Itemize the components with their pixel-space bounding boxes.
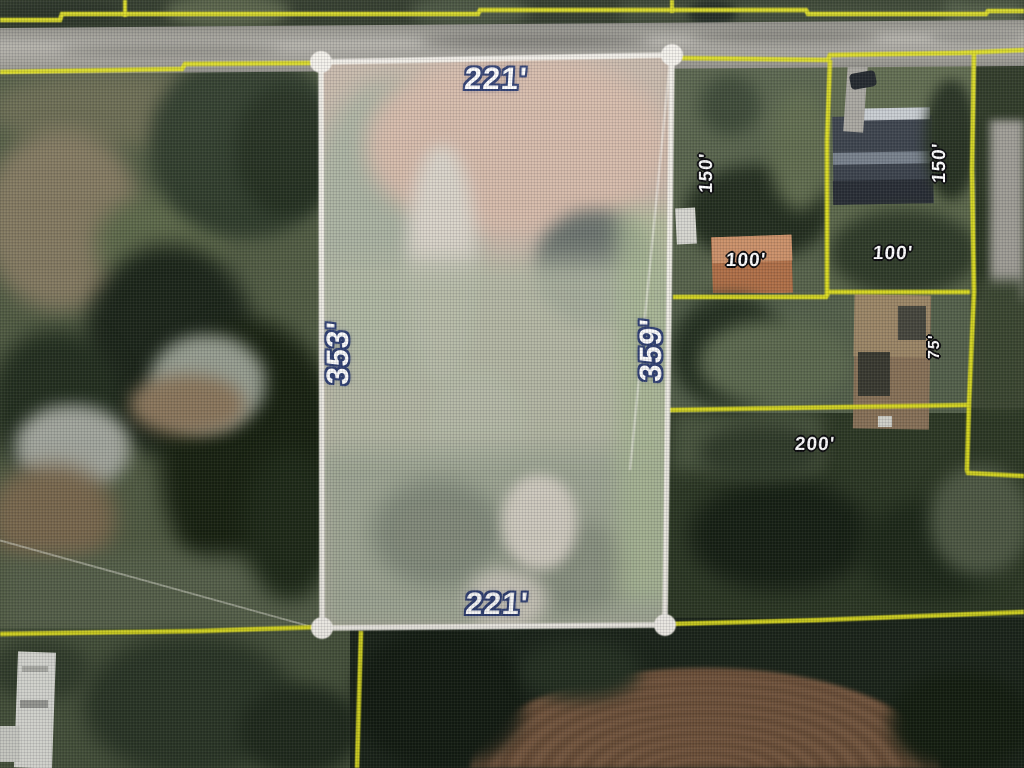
lot1-frontage-dimension: 100' bbox=[725, 250, 767, 272]
main-parcel-top-dimension: 221' bbox=[463, 61, 529, 97]
corner-marker-se bbox=[654, 614, 676, 636]
main-parcel-left-dimension: 353' bbox=[320, 320, 356, 386]
main-parcel-outline bbox=[321, 55, 672, 628]
lot1-lot2-south-line bbox=[673, 292, 970, 297]
southwest-boundary-line bbox=[0, 627, 322, 634]
survey-measure-line bbox=[630, 60, 670, 470]
lot2-frontage-dimension: 100' bbox=[872, 243, 914, 265]
corner-marker-nw bbox=[310, 51, 332, 73]
lot3-depth-dimension: 75' bbox=[926, 334, 944, 360]
boundary-lines-overlay bbox=[0, 0, 1024, 768]
south-divider-line bbox=[357, 631, 361, 768]
east-boundary-line bbox=[967, 52, 1024, 476]
main-parcel-right-dimension: 359' bbox=[633, 317, 669, 383]
road-north-boundary-line bbox=[0, 10, 1024, 20]
lot2-depth-dimension: 150' bbox=[929, 142, 951, 184]
lot3-south-line bbox=[670, 405, 968, 410]
west-approach-line bbox=[0, 63, 318, 72]
lot3-width-dimension: 200' bbox=[794, 434, 836, 456]
corner-marker-ne bbox=[661, 44, 683, 66]
aerial-parcel-map: 221' 353' 359' 221' 150' 100' 150' 100' … bbox=[0, 0, 1024, 768]
lot1-depth-dimension: 150' bbox=[696, 152, 718, 194]
main-parcel-bottom-dimension: 221' bbox=[464, 586, 530, 622]
corner-marker-sw bbox=[311, 617, 333, 639]
lot1-lot2-divider bbox=[827, 60, 830, 297]
southeast-boundary-line bbox=[668, 612, 1024, 624]
